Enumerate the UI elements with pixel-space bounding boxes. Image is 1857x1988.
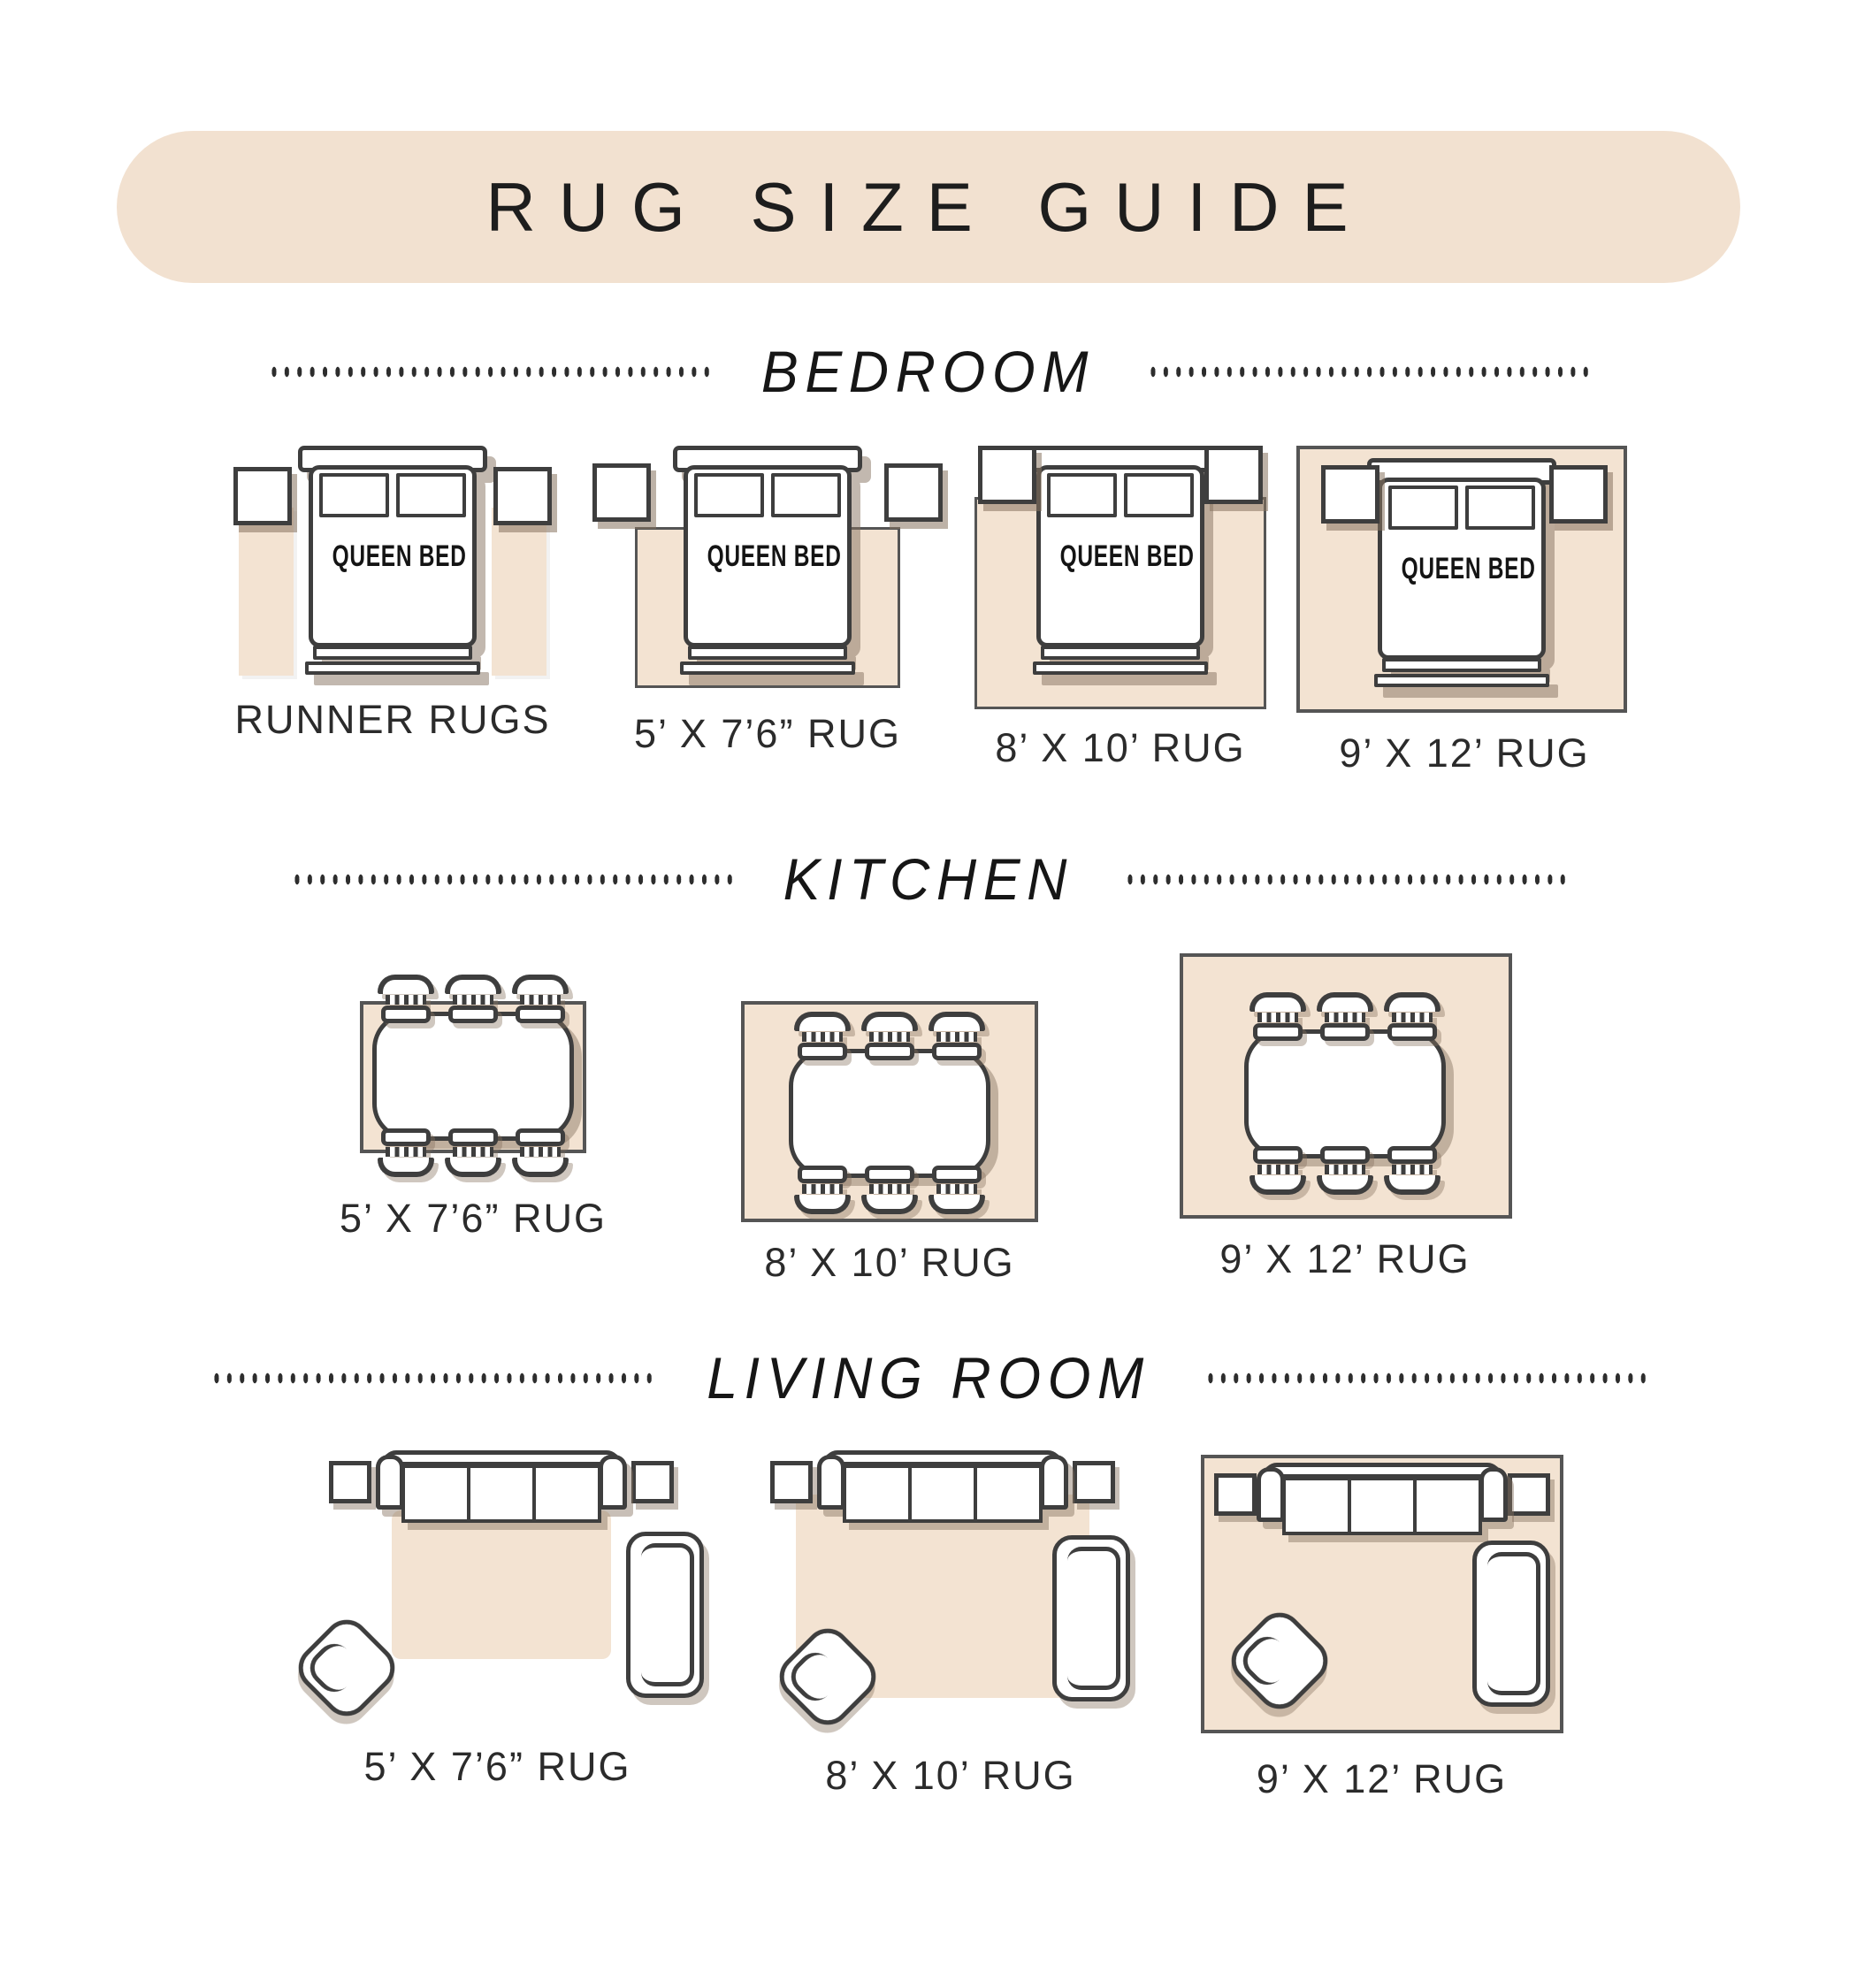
kitchen-8x10-diagram: [739, 975, 1040, 1226]
living-8x10-item: 8’ X 10’ RUG: [741, 1450, 1161, 1799]
pillow: [1047, 473, 1117, 517]
dining-set: [372, 1012, 574, 1141]
rug-size-caption: 9’ X 12’ RUG: [1257, 1756, 1507, 1802]
side-table-left: [329, 1461, 371, 1503]
queen-bed: QUEEN BED: [1378, 458, 1546, 688]
bedroom-8x10-item: QUEEN BED 8’ X 10’ RUG: [974, 446, 1266, 771]
sofa-cushion: [846, 1468, 912, 1519]
dining-chair: [860, 1166, 920, 1214]
chair-seat: [381, 1128, 431, 1146]
kitchen-section-header: KITCHEN: [0, 845, 1857, 913]
side-table-right: [631, 1461, 674, 1503]
chair-seat: [1387, 1023, 1437, 1041]
dining-chair: [860, 1012, 920, 1060]
chair-seat: [448, 1128, 498, 1146]
living-5x76-diagram: [290, 1450, 706, 1730]
bedroom-diagrams-row: QUEEN BED RUNNER RUGS QUEEN BED: [0, 446, 1857, 776]
chaise-lounge: [1052, 1535, 1130, 1701]
chair-back: [794, 1012, 851, 1031]
sofa-cushion: [536, 1468, 598, 1519]
chair-seat: [798, 1043, 847, 1060]
chair-slats: [453, 995, 493, 1005]
chair-back: [928, 1195, 985, 1214]
chair-back: [1317, 992, 1373, 1012]
dining-table: [372, 1012, 574, 1141]
bed-footboard: [1033, 661, 1208, 675]
dotted-divider-left: [291, 874, 733, 885]
chair-seat: [1320, 1146, 1370, 1164]
living-8x10-diagram: [741, 1450, 1161, 1739]
chair-slats: [1392, 1165, 1433, 1174]
nightstand-left: [978, 446, 1036, 504]
rug-size-caption: 5’ X 7’6” RUG: [364, 1744, 631, 1790]
sofa-arm-right: [1040, 1455, 1068, 1510]
queen-bed: QUEEN BED: [1036, 446, 1204, 676]
chair-slats: [453, 1147, 493, 1157]
sofa-arm-left: [817, 1455, 845, 1510]
dining-chair: [1315, 1146, 1375, 1195]
dining-chair: [1315, 992, 1375, 1041]
chair-seat: [1387, 1146, 1437, 1164]
living-section-header: LIVING ROOM: [0, 1344, 1857, 1411]
sofa-cushions: [401, 1464, 601, 1523]
dotted-divider-left: [268, 366, 710, 378]
title-banner: RUG SIZE GUIDE: [117, 131, 1740, 283]
dining-table: [789, 1049, 990, 1178]
chair-seat: [448, 1005, 498, 1023]
dotted-divider-right: [1147, 366, 1589, 378]
chair-seat: [1253, 1146, 1303, 1164]
chair-seat: [932, 1166, 982, 1183]
chair-back: [1249, 1175, 1306, 1195]
chair-back: [1317, 1175, 1373, 1195]
nightstand-left: [592, 463, 651, 522]
sofa-cushion: [1351, 1480, 1417, 1532]
rug-size-caption: RUNNER RUGS: [234, 697, 550, 743]
chair-seat: [516, 1005, 565, 1023]
chair-slats: [869, 1032, 910, 1042]
pillow: [771, 473, 841, 517]
dining-table: [1244, 1029, 1446, 1158]
chair-slats: [936, 1184, 977, 1194]
sofa-cushions: [1282, 1477, 1482, 1535]
chair-back: [1384, 1175, 1441, 1195]
bed-footboard: [305, 661, 480, 675]
dotted-divider-right: [1204, 1372, 1647, 1384]
sofa: [1263, 1463, 1502, 1537]
side-table-left: [770, 1461, 813, 1503]
chair-slats: [520, 1147, 561, 1157]
sofa-arm-left: [376, 1455, 404, 1510]
chair-slats: [1325, 1013, 1365, 1022]
chair-back: [512, 975, 569, 994]
chair-back: [1249, 992, 1306, 1012]
dining-chair: [376, 975, 436, 1023]
side-table-left: [1214, 1473, 1257, 1516]
bed-blanket-fold: [313, 646, 472, 660]
chair-slats: [520, 995, 561, 1005]
pillows: [319, 473, 466, 517]
chair-seat: [798, 1166, 847, 1183]
area-rug: [392, 1510, 611, 1659]
living-9x12-item: 9’ X 12’ RUG: [1196, 1450, 1568, 1802]
rug-size-caption: 9’ X 12’ RUG: [1339, 730, 1589, 776]
living-9x12-diagram: [1196, 1450, 1568, 1742]
pillows: [1047, 473, 1194, 517]
chair-slats: [1257, 1013, 1298, 1022]
pillow: [1124, 473, 1194, 517]
chair-back: [378, 975, 434, 994]
living-5x76-item: 5’ X 7’6” RUG: [290, 1450, 706, 1790]
accent-chair: [288, 1610, 403, 1725]
chair-back: [928, 1012, 985, 1031]
chair-slats: [1325, 1165, 1365, 1174]
chair-slats: [1392, 1013, 1433, 1022]
bedroom-9x12-diagram: QUEEN BED: [1296, 446, 1632, 716]
pillow: [1388, 486, 1458, 530]
dining-chair: [927, 1166, 987, 1214]
kitchen-5x76-item: 5’ X 7’6” RUG: [340, 943, 607, 1242]
sofa-cushion: [912, 1468, 977, 1519]
chair-seat: [865, 1166, 914, 1183]
chair-slats: [936, 1032, 977, 1042]
bed-footboard: [1374, 674, 1549, 687]
chair-back: [445, 1158, 501, 1177]
kitchen-9x12-item: 9’ X 12’ RUG: [1173, 943, 1517, 1282]
dining-chair: [1248, 1146, 1308, 1195]
chair-slats: [802, 1184, 843, 1194]
dining-chair: [510, 1128, 570, 1177]
sofa-cushion: [1417, 1480, 1479, 1532]
nightstand-right: [1204, 446, 1263, 504]
rug-size-caption: 9’ X 12’ RUG: [1219, 1236, 1470, 1282]
sofa: [382, 1450, 621, 1525]
chaise-lounge: [1472, 1541, 1550, 1707]
dotted-divider-right: [1124, 874, 1566, 885]
sofa-cushion: [470, 1468, 536, 1519]
dining-chair: [443, 975, 503, 1023]
chair-back: [861, 1195, 918, 1214]
kitchen-diagrams-row: 5’ X 7’6” RUG 8’ X 10’ RUG: [0, 943, 1857, 1286]
pillows: [1388, 486, 1535, 530]
pillows: [694, 473, 841, 517]
sofa-cushion: [977, 1468, 1039, 1519]
rug-size-caption: 5’ X 7’6” RUG: [634, 711, 901, 757]
chair-seat: [1320, 1023, 1370, 1041]
bedroom-9x12-item: QUEEN BED 9’ X 12’ RUG: [1296, 446, 1632, 776]
chair-slats: [386, 1147, 426, 1157]
bedroom-5x76-item: QUEEN BED 5’ X 7’6” RUG: [591, 446, 944, 757]
chair-slats: [386, 995, 426, 1005]
chair-seat: [381, 1005, 431, 1023]
sofa-arm-left: [1257, 1467, 1285, 1522]
kitchen-section-title: KITCHEN: [783, 845, 1074, 913]
bed-blanket-fold: [688, 646, 847, 660]
chaise-lounge: [626, 1532, 704, 1698]
side-table-right: [1073, 1461, 1115, 1503]
bed-footboard: [680, 661, 855, 675]
runner-rug-right: [492, 508, 546, 676]
dining-chair: [1248, 992, 1308, 1041]
bed-blanket-fold: [1041, 646, 1200, 660]
nightstand-right: [493, 467, 552, 525]
bedroom-runner-item: QUEEN BED RUNNER RUGS: [225, 446, 561, 743]
pillow: [1465, 486, 1535, 530]
bedroom-section-header: BEDROOM: [0, 338, 1857, 405]
dining-chair: [792, 1012, 852, 1060]
dining-chair: [1382, 992, 1442, 1041]
rug-size-caption: 5’ X 7’6” RUG: [340, 1196, 607, 1242]
chair-seat: [1253, 1023, 1303, 1041]
pillow: [319, 473, 389, 517]
bed-label: QUEEN BED: [707, 539, 829, 574]
sofa-cushions: [843, 1464, 1043, 1523]
sofa-cushion: [1286, 1480, 1351, 1532]
nightstand-right: [1549, 465, 1608, 524]
side-table-right: [1508, 1473, 1550, 1516]
pillow: [396, 473, 466, 517]
bedroom-5x76-diagram: QUEEN BED: [591, 446, 944, 697]
chair-back: [445, 975, 501, 994]
queen-bed: QUEEN BED: [309, 446, 477, 676]
sofa: [823, 1450, 1062, 1525]
queen-bed: QUEEN BED: [684, 446, 852, 676]
sofa-arm-right: [1479, 1467, 1508, 1522]
sofa-cushion: [405, 1468, 470, 1519]
chair-seat: [932, 1043, 982, 1060]
nightstand-left: [233, 467, 292, 525]
chair-slats: [1257, 1165, 1298, 1174]
bedroom-8x10-diagram: QUEEN BED: [974, 446, 1266, 711]
kitchen-5x76-diagram: [349, 969, 597, 1181]
bed-label: QUEEN BED: [1402, 552, 1523, 586]
bed-blanket-fold: [1382, 658, 1541, 672]
bedroom-runner-diagram: QUEEN BED: [225, 446, 561, 683]
rug-size-caption: 8’ X 10’ RUG: [825, 1753, 1075, 1799]
rug-size-caption: 8’ X 10’ RUG: [764, 1240, 1014, 1286]
nightstand-right: [884, 463, 943, 522]
dining-set: [1244, 1029, 1446, 1158]
chair-back: [512, 1158, 569, 1177]
nightstand-left: [1321, 465, 1379, 524]
kitchen-8x10-item: 8’ X 10’ RUG: [739, 943, 1040, 1286]
dining-chair: [510, 975, 570, 1023]
dining-chair: [927, 1012, 987, 1060]
chair-back: [794, 1195, 851, 1214]
dining-chair: [376, 1128, 436, 1177]
runner-rug-left: [239, 508, 294, 676]
chair-back: [1384, 992, 1441, 1012]
chair-slats: [802, 1032, 843, 1042]
chair-seat: [516, 1128, 565, 1146]
page-title: RUG SIZE GUIDE: [485, 167, 1371, 248]
bed-label: QUEEN BED: [1060, 539, 1181, 574]
dining-chair: [1382, 1146, 1442, 1195]
pillow: [694, 473, 764, 517]
living-section-title: LIVING ROOM: [707, 1344, 1150, 1411]
sofa-arm-right: [599, 1455, 627, 1510]
dining-chair: [443, 1128, 503, 1177]
bedroom-section-title: BEDROOM: [761, 338, 1095, 405]
bed-label: QUEEN BED: [332, 539, 454, 574]
kitchen-9x12-diagram: [1173, 943, 1517, 1222]
living-diagrams-row: 5’ X 7’6” RUG 8’ X 10’ RUG: [0, 1450, 1857, 1802]
chair-slats: [869, 1184, 910, 1194]
chair-back: [378, 1158, 434, 1177]
dotted-divider-left: [210, 1372, 653, 1384]
rug-size-caption: 8’ X 10’ RUG: [995, 725, 1245, 771]
chair-back: [861, 1012, 918, 1031]
dining-chair: [792, 1166, 852, 1214]
chair-seat: [865, 1043, 914, 1060]
dining-set: [789, 1049, 990, 1178]
